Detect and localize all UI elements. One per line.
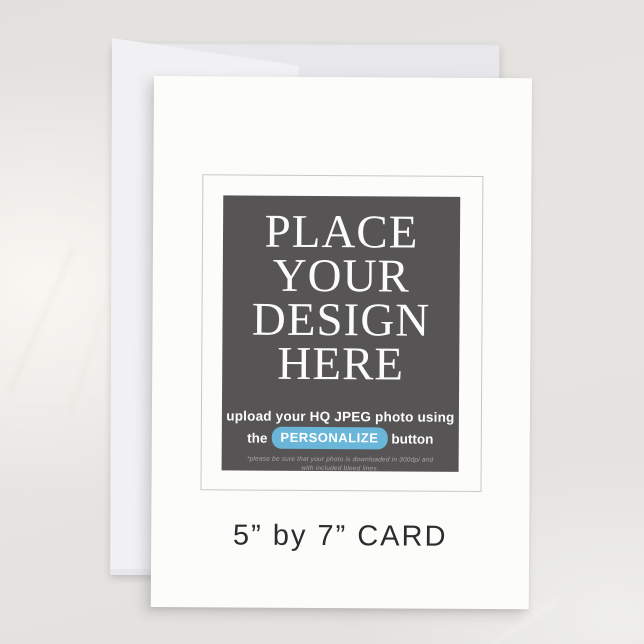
personalize-prefix: the — [247, 428, 267, 447]
separator-line — [237, 400, 444, 401]
placeholder-line-3: DESIGN — [252, 298, 431, 343]
print-note-line-1: *please be sure that your photo is downl… — [247, 456, 433, 466]
marble-vein — [8, 246, 76, 393]
design-placeholder-box: PLACE YOUR DESIGN HERE upload your HQ JP… — [222, 195, 461, 471]
personalize-instruction: the PERSONALIZE button — [247, 427, 433, 450]
card-size-caption: 5” by 7” CARD — [151, 519, 529, 554]
print-note-line-2: with included bleed lines. — [247, 464, 433, 474]
card-front: PLACE YOUR DESIGN HERE upload your HQ JP… — [151, 76, 532, 609]
placeholder-line-1: PLACE — [264, 210, 418, 255]
card-mockup-scene: PLACE YOUR DESIGN HERE upload your HQ JP… — [0, 0, 644, 644]
print-note: *please be sure that your photo is downl… — [247, 456, 433, 474]
upload-instruction: upload your HQ JPEG photo using — [226, 408, 454, 424]
marble-vein — [68, 303, 107, 418]
personalize-button-pill: PERSONALIZE — [271, 427, 387, 450]
design-area-frame: PLACE YOUR DESIGN HERE upload your HQ JP… — [200, 174, 483, 492]
placeholder-line-2: YOUR — [273, 254, 410, 299]
personalize-suffix: button — [391, 429, 433, 448]
placeholder-line-4: HERE — [277, 342, 404, 387]
